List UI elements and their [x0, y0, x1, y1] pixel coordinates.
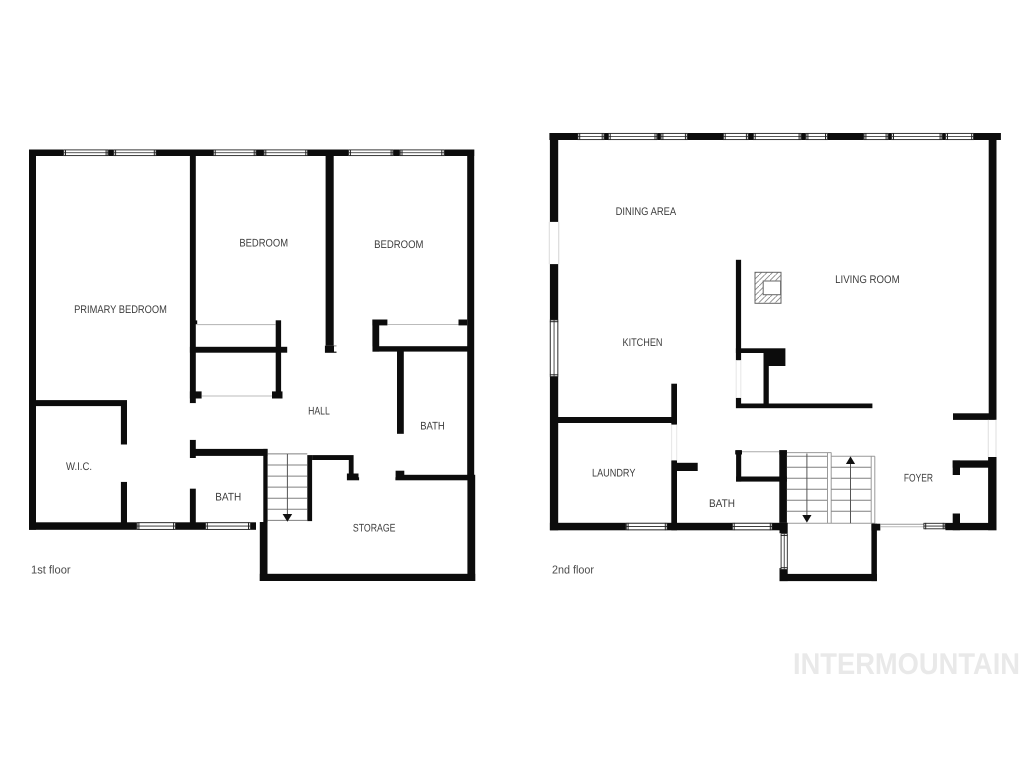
svg-text:BEDROOM: BEDROOM [239, 238, 288, 250]
svg-text:BEDROOM: BEDROOM [374, 239, 423, 251]
svg-text:LIVING ROOM: LIVING ROOM [835, 274, 900, 286]
svg-text:LAUNDRY: LAUNDRY [592, 468, 636, 480]
svg-text:BATH: BATH [215, 492, 241, 504]
svg-text:STORAGE: STORAGE [353, 522, 396, 534]
svg-text:FOYER: FOYER [904, 472, 933, 484]
svg-text:KITCHEN: KITCHEN [623, 337, 663, 349]
svg-text:BATH: BATH [709, 498, 735, 510]
svg-text:DINING AREA: DINING AREA [616, 206, 677, 218]
svg-text:HALL: HALL [308, 405, 330, 417]
svg-text:PRIMARY BEDROOM: PRIMARY BEDROOM [74, 304, 167, 316]
svg-text:1st floor: 1st floor [31, 564, 71, 576]
svg-text:INTERMOUNTAIN: INTERMOUNTAIN [793, 648, 1020, 681]
svg-text:BATH: BATH [420, 421, 445, 433]
svg-text:2nd floor: 2nd floor [552, 564, 594, 576]
svg-text:W.I.C.: W.I.C. [66, 461, 92, 473]
